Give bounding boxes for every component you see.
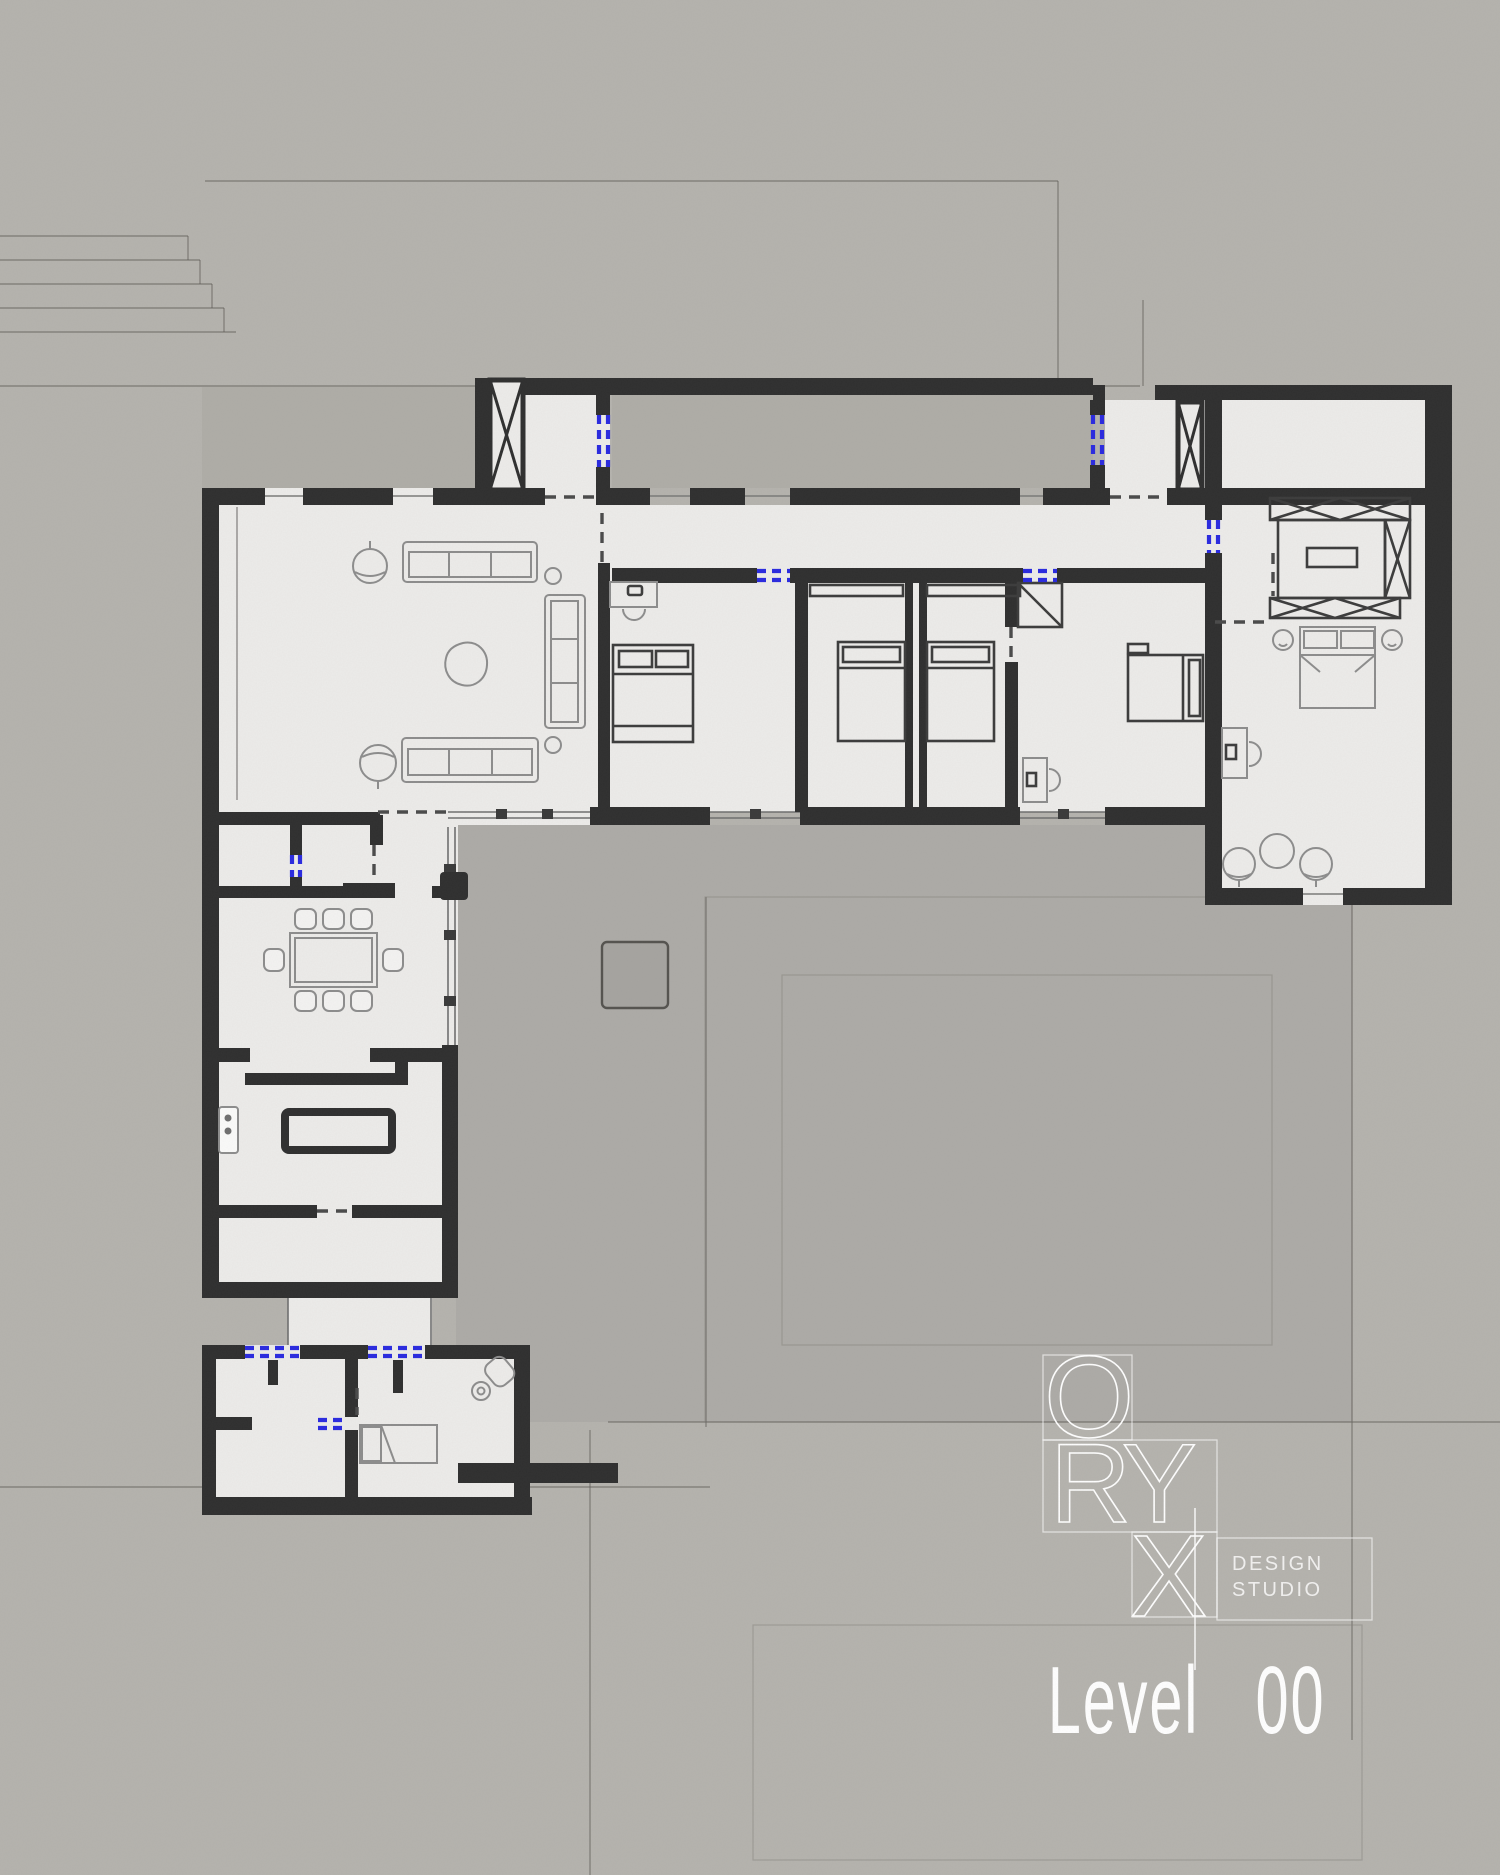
floor-plan-canvas: O R Y X DESIGN STUDIO Level 00 (0, 0, 1500, 1875)
floor-plan-drawing: O R Y X DESIGN STUDIO Level 00 (0, 0, 1500, 1875)
paper-grain-texture (0, 0, 1500, 1875)
